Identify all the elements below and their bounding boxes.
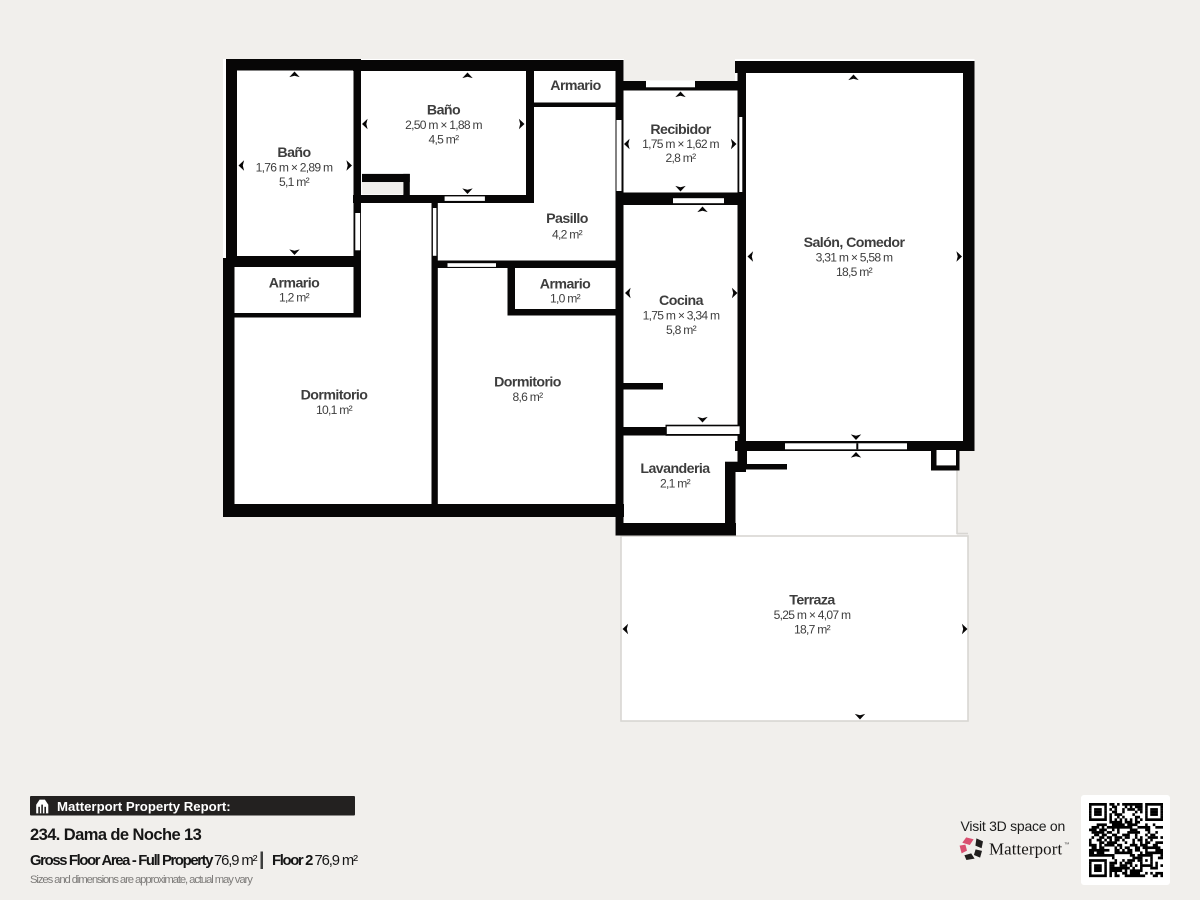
- svg-text:5,8 m²: 5,8 m²: [666, 323, 697, 337]
- svg-text:Pasillo: Pasillo: [546, 211, 589, 227]
- svg-text:™: ™: [1064, 842, 1070, 848]
- svg-text:Dormitorio: Dormitorio: [494, 375, 562, 391]
- svg-text:1,75 m × 3,34 m: 1,75 m × 3,34 m: [643, 309, 720, 323]
- svg-text:Armario: Armario: [540, 277, 591, 293]
- svg-text:Armario: Armario: [269, 276, 320, 292]
- svg-text:Armario: Armario: [550, 78, 601, 94]
- svg-text:18,5 m²: 18,5 m²: [836, 265, 873, 279]
- svg-text:Baño: Baño: [427, 103, 461, 119]
- svg-text:Cocina: Cocina: [659, 293, 704, 309]
- svg-text:Sizes and dimensions are appro: Sizes and dimensions are approximate, ac…: [30, 874, 253, 886]
- svg-text:76,9 m²: 76,9 m²: [315, 853, 359, 869]
- svg-text:Visit 3D space on: Visit 3D space on: [961, 818, 1065, 834]
- svg-text:Floor 2: Floor 2: [272, 853, 313, 869]
- svg-text:18,7 m²: 18,7 m²: [794, 623, 831, 637]
- svg-text:Matterport Property Report:: Matterport Property Report:: [57, 799, 231, 814]
- svg-text:Baño: Baño: [277, 145, 311, 161]
- svg-text:Matterport: Matterport: [989, 840, 1062, 859]
- svg-text:2,50 m × 1,88 m: 2,50 m × 1,88 m: [405, 118, 482, 132]
- svg-text:1,0 m²: 1,0 m²: [550, 292, 581, 306]
- svg-text:2,8 m²: 2,8 m²: [666, 151, 697, 165]
- svg-text:234. Dama de Noche 13: 234. Dama de Noche 13: [30, 826, 202, 844]
- svg-text:1,2 m²: 1,2 m²: [279, 291, 310, 305]
- svg-text:5,1 m²: 5,1 m²: [279, 175, 310, 189]
- svg-text:10,1 m²: 10,1 m²: [316, 403, 353, 417]
- svg-text:2,1 m²: 2,1 m²: [660, 477, 691, 491]
- svg-text:5,25 m × 4,07 m: 5,25 m × 4,07 m: [774, 608, 851, 622]
- svg-text:Dormitorio: Dormitorio: [301, 388, 369, 404]
- svg-text:4,5 m²: 4,5 m²: [429, 133, 460, 147]
- svg-text:Terraza: Terraza: [789, 593, 835, 609]
- svg-text:3,31 m × 5,58 m: 3,31 m × 5,58 m: [816, 251, 893, 265]
- svg-text:76,9 m²: 76,9 m²: [214, 853, 258, 869]
- svg-text:Lavanderia: Lavanderia: [640, 461, 710, 477]
- svg-text:1,75 m × 1,62 m: 1,75 m × 1,62 m: [642, 137, 719, 151]
- svg-text:4,2 m²: 4,2 m²: [552, 228, 583, 242]
- svg-text:Salón, Comedor: Salón, Comedor: [804, 235, 906, 251]
- svg-text:Recibidor: Recibidor: [650, 122, 711, 138]
- svg-text:Gross Floor Area - Full Proper: Gross Floor Area - Full Property: [30, 853, 214, 869]
- svg-text:8,6 m²: 8,6 m²: [513, 390, 544, 404]
- svg-text:1,76 m × 2,89 m: 1,76 m × 2,89 m: [256, 161, 333, 175]
